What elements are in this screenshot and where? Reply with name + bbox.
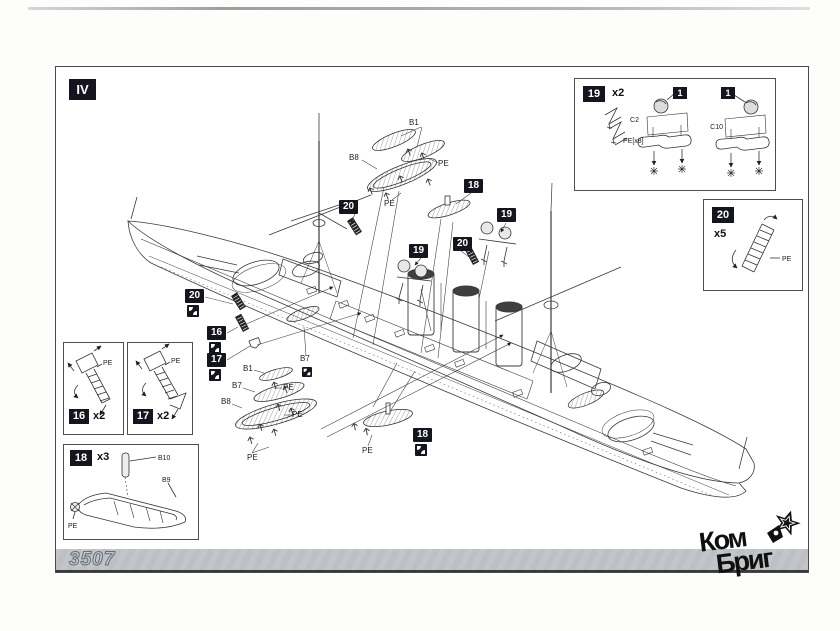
pe-label: PE xyxy=(103,360,113,367)
pe-davit-marks xyxy=(247,148,433,445)
detail-box-17-qty: x2 xyxy=(157,410,169,422)
detail-box-19-qty: x2 xyxy=(612,87,624,99)
pe-bracket-17 xyxy=(249,338,261,350)
part-label-b9: B9 xyxy=(162,477,171,484)
mirror-sides-icon xyxy=(209,341,221,353)
detail-box-16: PE 16 x2 xyxy=(63,342,124,435)
brand-logo: Ком Бриг xyxy=(697,509,807,589)
pe-ladder-16 xyxy=(235,314,249,332)
masts-group xyxy=(269,113,621,393)
detail-box-19: 19 x2 xyxy=(574,78,776,191)
part-label-b1: B1 xyxy=(243,364,253,373)
star-emblem-icon xyxy=(759,507,805,547)
detail-box-18-number: 18 xyxy=(70,450,92,466)
footer-bar: 3507 xyxy=(56,549,808,572)
part-label-c10: C10 xyxy=(710,124,723,131)
part-label-pe: PE xyxy=(292,410,303,419)
part-label-c2: C2 xyxy=(630,117,639,124)
pe-x8-label: PE[x8] xyxy=(623,138,644,145)
callout-18-launch: 18 xyxy=(464,179,483,193)
pe-label: PE xyxy=(782,256,792,263)
detail-box-20-qty: x5 xyxy=(714,228,726,240)
part-label-b1: B1 xyxy=(409,118,419,127)
detail-box-20-number: 20 xyxy=(712,207,734,223)
callout-1: 1 xyxy=(725,88,730,98)
pe-label: PE xyxy=(68,523,78,530)
part-label-b8: B8 xyxy=(349,153,359,162)
hull-group xyxy=(128,197,754,497)
step-number-badge: IV xyxy=(69,79,96,100)
part-label-pe: PE xyxy=(438,159,449,168)
callout-20-fore: 20 xyxy=(339,200,358,214)
mirror-sides-icon xyxy=(187,304,199,316)
detail-box-18-qty: x3 xyxy=(97,451,109,463)
callout-16: 16 xyxy=(207,326,226,340)
detail-box-16-qty: x2 xyxy=(93,410,105,422)
mirror-sides-icon xyxy=(415,443,427,455)
diagram-frame: IV xyxy=(55,66,809,573)
mirror-sides-icon xyxy=(209,368,221,380)
callout-19-left: 19 xyxy=(409,244,428,258)
detail-box-16-number: 16 xyxy=(69,409,89,424)
part-label-pe: PE xyxy=(384,199,395,208)
pe-ladder-fore xyxy=(347,217,362,235)
part-label-b7-deck: B7 xyxy=(300,354,310,363)
scan-artifact-line xyxy=(28,7,810,10)
product-code: 3507 xyxy=(69,549,115,570)
detail-box-17: PE 17 x2 xyxy=(127,342,193,435)
part-label-b7: B7 xyxy=(232,381,242,390)
callout-20-mid: 20 xyxy=(453,237,472,251)
loose-boats-group xyxy=(233,125,472,435)
detail-box-18: 18 x3 B10 B9 PE xyxy=(63,444,199,540)
callout-1: 1 xyxy=(677,88,682,98)
detail-box-20: 20 x5 PE xyxy=(703,199,803,291)
callout-17: 17 xyxy=(207,353,226,367)
superstructure-group xyxy=(279,250,653,455)
instruction-sheet: IV xyxy=(0,0,840,631)
part-label-pe: PE xyxy=(362,446,373,455)
part-label-pe: PE xyxy=(283,383,294,392)
mirror-sides-icon xyxy=(302,364,314,376)
callout-19-right: 19 xyxy=(497,208,516,222)
callout-20-bow: 20 xyxy=(185,289,204,303)
callout-18-boat: 18 xyxy=(413,428,432,442)
detail-box-17-number: 17 xyxy=(133,409,153,424)
detail-box-19-number: 19 xyxy=(583,86,605,102)
brand-name-bottom: Бриг xyxy=(714,543,773,581)
part-label-b10: B10 xyxy=(158,455,171,462)
pe-label: PE xyxy=(171,358,181,365)
part-label-pe: PE xyxy=(247,453,258,462)
part-label-b8: B8 xyxy=(221,397,231,406)
funnels-group xyxy=(408,269,522,366)
